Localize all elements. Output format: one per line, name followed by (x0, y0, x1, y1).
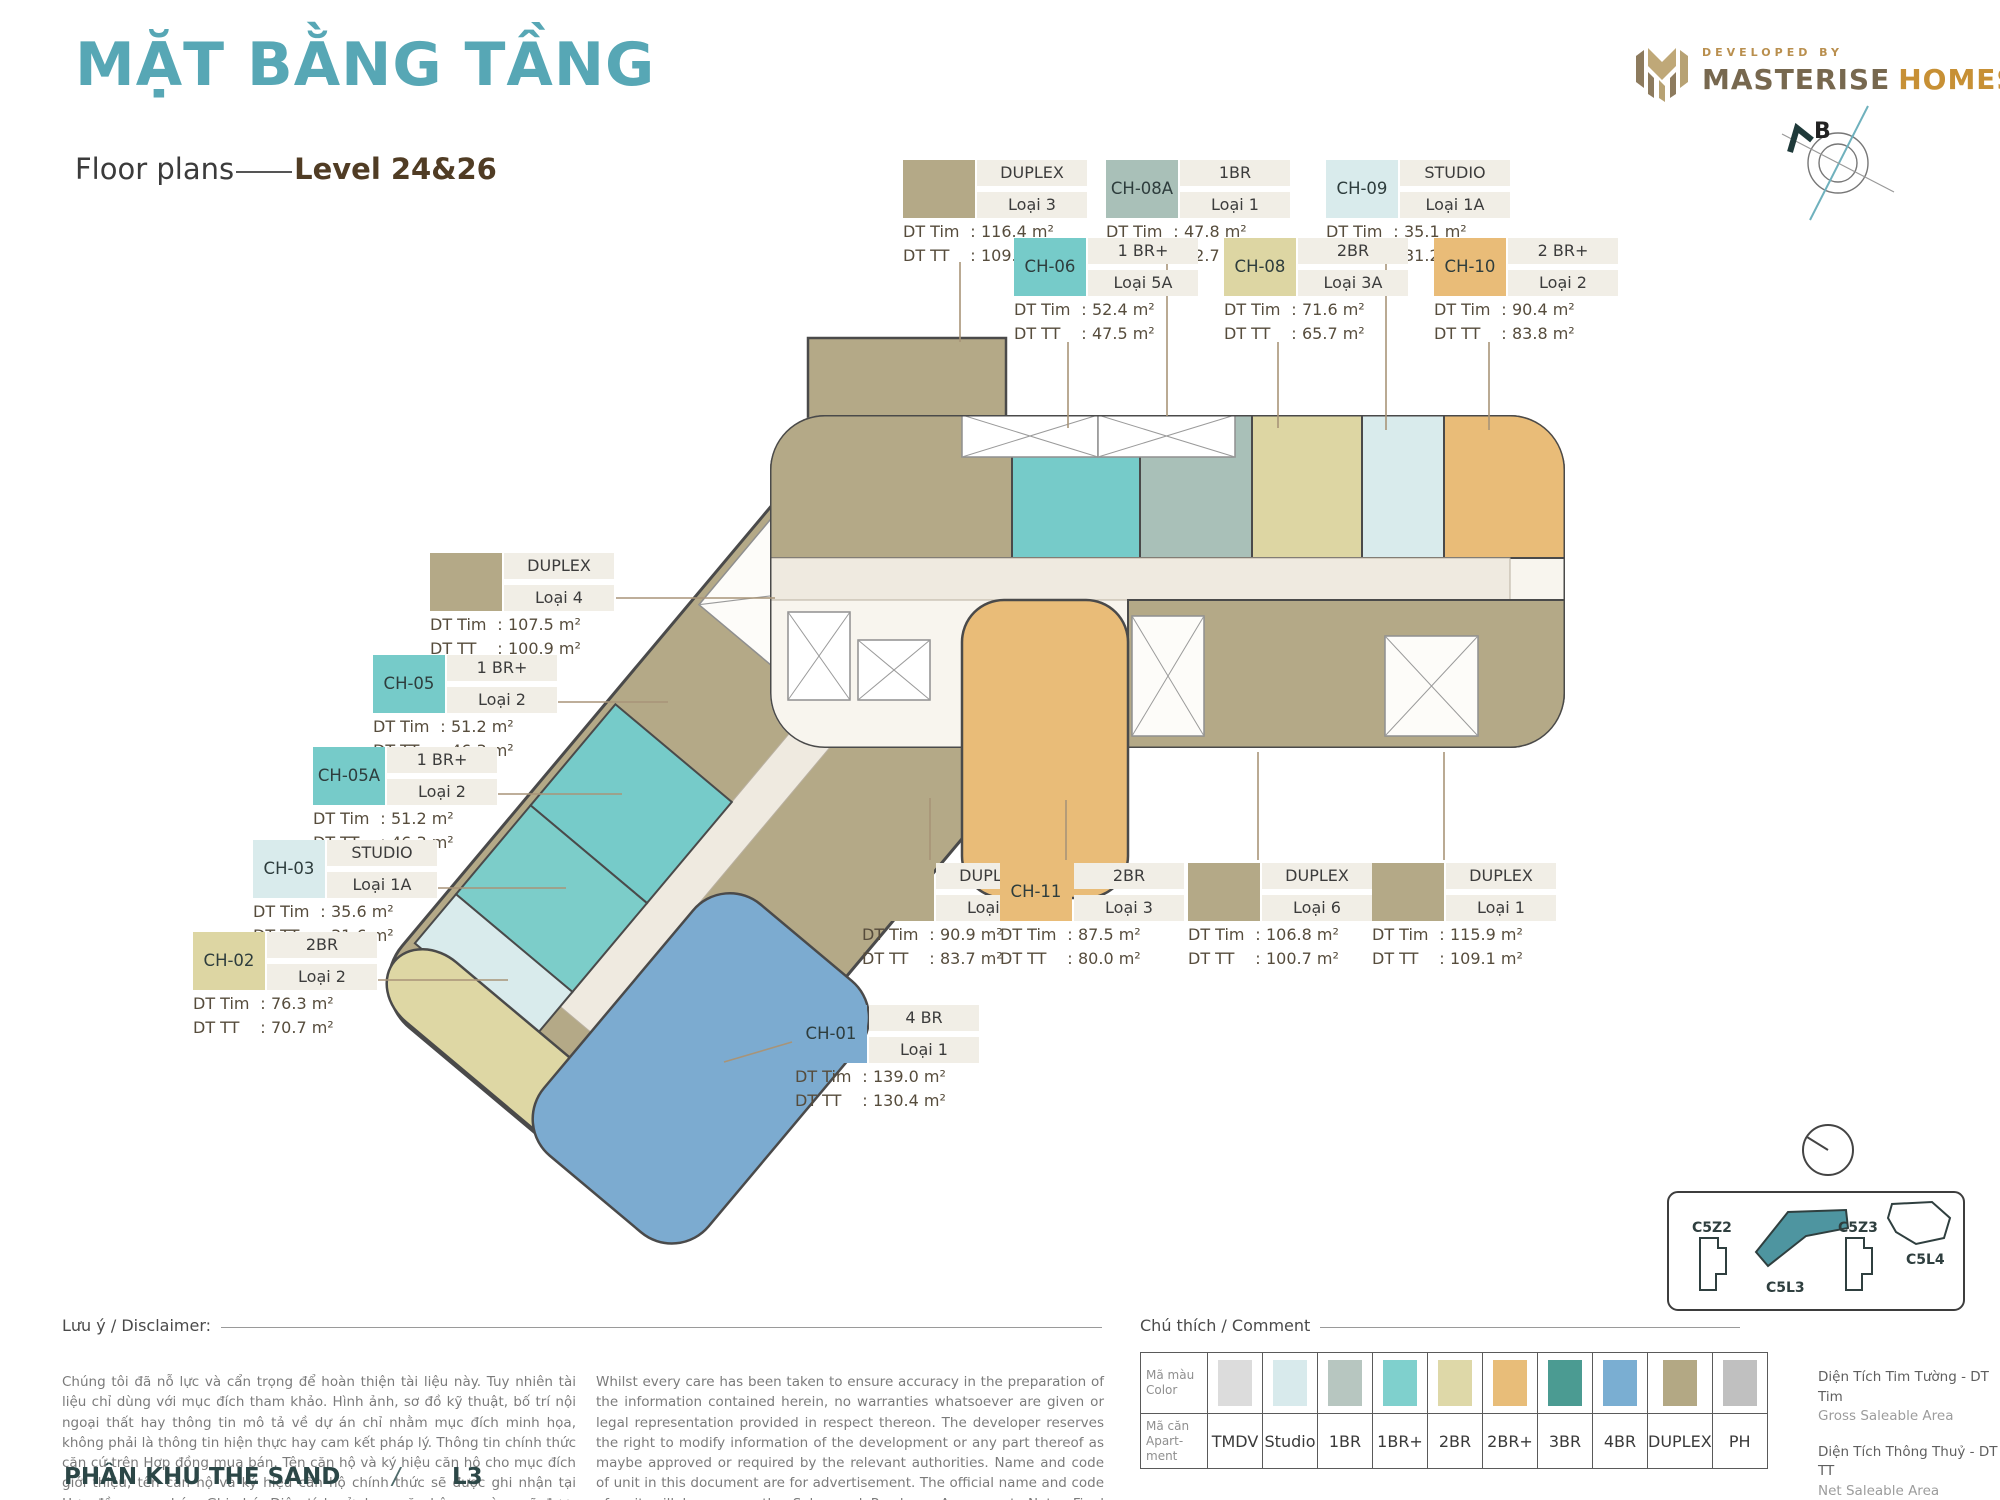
unit-callout-duplex-1: DUPLEXLoại 1 DT Tim:115.9 m² DT TT:109.1… (1372, 863, 1556, 969)
unit-color-swatch: CH-09 (1326, 160, 1398, 218)
level-label: Level 24&26 (294, 152, 497, 186)
project-name: PHÂN KHU THE SAND (64, 1464, 340, 1490)
unit-callout-ch05a: CH-05A 1 BR+Loại 2 DT Tim:51.2 m² DT TT:… (313, 747, 497, 853)
unit-color-swatch: CH-02 (193, 932, 265, 990)
unit-color-swatch: CH-08 (1224, 238, 1296, 296)
unit-color-swatch (1372, 863, 1444, 921)
unit-color-swatch: CH-03 (253, 840, 325, 898)
keyplan: C5Z2 C5L3 C5Z3 C5L4 (1668, 1192, 1964, 1310)
unit-color-swatch (903, 160, 975, 218)
subtitle-divider (236, 171, 292, 173)
unit-callout-ch05: CH-05 1 BR+Loại 2 DT Tim:51.2 m² DT TT:4… (373, 655, 557, 761)
gross-area-note-vi: Diện Tích Tim Tường - DT Tim (1818, 1368, 1998, 1407)
area-notes: Diện Tích Tim Tường - DT Tim Gross Salea… (1818, 1368, 1998, 1500)
unit-variant: Loại 3 (977, 192, 1087, 218)
legend-swatch (1663, 1360, 1697, 1406)
unit-callout-duplex-6: DUPLEXLoại 6 DT Tim:106.8 m² DT TT:100.7… (1188, 863, 1372, 969)
developed-by-label: DEVELOPED BY (1702, 46, 2000, 59)
compass-icon: B (1782, 106, 1894, 220)
svg-text:C5Z2: C5Z2 (1692, 1220, 1732, 1236)
legend-swatch (1723, 1360, 1757, 1406)
unit-color-swatch: CH-01 (795, 1005, 867, 1063)
legend-label: 1BR (1318, 1414, 1373, 1469)
unit-type: DUPLEX (977, 160, 1087, 186)
unit-callout-ch03: CH-03 STUDIOLoại 1A DT Tim:35.6 m² DT TT… (253, 840, 437, 946)
unit-color-swatch: CH-05 (373, 655, 445, 713)
footer: PHÂN KHU THE SAND / L3 (64, 1464, 483, 1490)
developer-logo: DEVELOPED BY MASTERISEHOMES (1634, 40, 2000, 102)
unit-callout-ch10: CH-10 2 BR+Loại 2 DT Tim:90.4 m² DT TT:8… (1434, 238, 1618, 344)
plan-unit-ch08 (1252, 415, 1362, 558)
legend-swatch (1383, 1360, 1417, 1406)
legend-label: Studio (1263, 1414, 1318, 1469)
page-subtitle: Floor plans Level 24&26 (75, 152, 497, 186)
svg-text:C5L3: C5L3 (1766, 1280, 1805, 1296)
unit-color-swatch: CH-05A (313, 747, 385, 805)
legend-apartment-header: Mã cănApart-ment (1141, 1414, 1208, 1469)
unit-color-swatch: CH-11 (1000, 863, 1072, 921)
footer-separator: / (392, 1464, 400, 1490)
plan-unit-ch10 (1444, 415, 1565, 558)
keyplan-building-c5z3 (1846, 1238, 1872, 1290)
keyplan-building-c5l4 (1888, 1202, 1950, 1244)
legend-swatch (1218, 1360, 1252, 1406)
unit-color-swatch (862, 863, 934, 921)
masterise-mark-icon (1634, 40, 1690, 102)
net-area-note-vi: Diện Tích Thông Thuỷ - DT TT (1818, 1443, 1998, 1482)
legend-swatch (1603, 1360, 1637, 1406)
unit-callout-ch08: CH-08 2BRLoại 3A DT Tim:71.6 m² DT TT:65… (1224, 238, 1408, 344)
legend-swatch (1548, 1360, 1582, 1406)
plan-unit-ch11 (962, 600, 1128, 898)
legend-label: 4BR (1593, 1414, 1648, 1469)
legend-label: 3BR (1538, 1414, 1593, 1469)
unit-callout-duplex-4: DUPLEXLoại 4 DT Tim:107.5 m² DT TT:100.9… (430, 553, 614, 659)
disclaimer-header: Lưu ý / Disclaimer: (62, 1316, 1102, 1335)
legend-label: 1BR+ (1373, 1414, 1428, 1469)
legend-color-row: Mã màuColor (1141, 1353, 1768, 1414)
compass-north-label: B (1814, 119, 1831, 144)
legend-label: 2BR (1428, 1414, 1483, 1469)
legend-label: PH (1712, 1414, 1767, 1469)
legend-swatch (1328, 1360, 1362, 1406)
plan-unit-ch09 (1362, 415, 1444, 558)
subtitle-text: Floor plans (75, 152, 234, 186)
floorplan-page: B C5Z2 C5L3 C5Z3 C5L4 MẶT BẰNG TẦNG Floo… (0, 0, 2000, 1500)
legend-label: DUPLEX (1648, 1414, 1713, 1469)
right-wing (770, 415, 1565, 748)
unit-callout-ch01: CH-01 4 BRLoại 1 DT Tim:139.0 m² DT TT:1… (795, 1005, 979, 1111)
legend-swatch (1493, 1360, 1527, 1406)
legend-swatch (1273, 1360, 1307, 1406)
brand-homes: HOMES (1898, 63, 2000, 96)
clock-icon (1803, 1125, 1853, 1175)
unit-callout-ch11: CH-11 2BRLoại 3 DT Tim:87.5 m² DT TT:80.… (1000, 863, 1184, 969)
svg-text:C5L4: C5L4 (1906, 1252, 1945, 1268)
legend-label: TMDV (1208, 1414, 1263, 1469)
keyplan-building-c5z2 (1700, 1238, 1726, 1290)
gross-area-note-en: Gross Saleable Area (1818, 1407, 1998, 1427)
unit-callout-ch06: CH-06 1 BR+Loại 5A DT Tim:52.4 m² DT TT:… (1014, 238, 1198, 344)
brand-masterise: MASTERISE (1702, 63, 1890, 96)
unit-color-swatch (430, 553, 502, 611)
unit-color-swatch: CH-10 (1434, 238, 1506, 296)
comment-header: Chú thích / Comment (1140, 1316, 1740, 1335)
unit-color-swatch (1188, 863, 1260, 921)
legend-swatch (1438, 1360, 1472, 1406)
net-area-note-en: Net Saleable Area (1818, 1482, 1998, 1500)
disclaimer-text-en: Whilst every care has been taken to ensu… (596, 1372, 1104, 1500)
legend-label-row: Mã cănApart-ment TMDV Studio 1BR 1BR+ 2B… (1141, 1414, 1768, 1469)
legend-table: Mã màuColor Mã cănApart-ment TMDV Studio… (1140, 1352, 1768, 1469)
unit-color-swatch: CH-08A (1106, 160, 1178, 218)
footer-level: L3 (452, 1464, 483, 1490)
unit-color-swatch: CH-06 (1014, 238, 1086, 296)
legend-color-header: Mã màuColor (1141, 1353, 1208, 1414)
keyplan-building-c5l3-active (1756, 1210, 1848, 1266)
svg-text:C5Z3: C5Z3 (1838, 1220, 1878, 1236)
legend-label: 2BR+ (1483, 1414, 1538, 1469)
unit-callout-ch02: CH-02 2BRLoại 2 DT Tim:76.3 m² DT TT:70.… (193, 932, 377, 1038)
page-title: MẶT BẰNG TẦNG (75, 30, 655, 100)
